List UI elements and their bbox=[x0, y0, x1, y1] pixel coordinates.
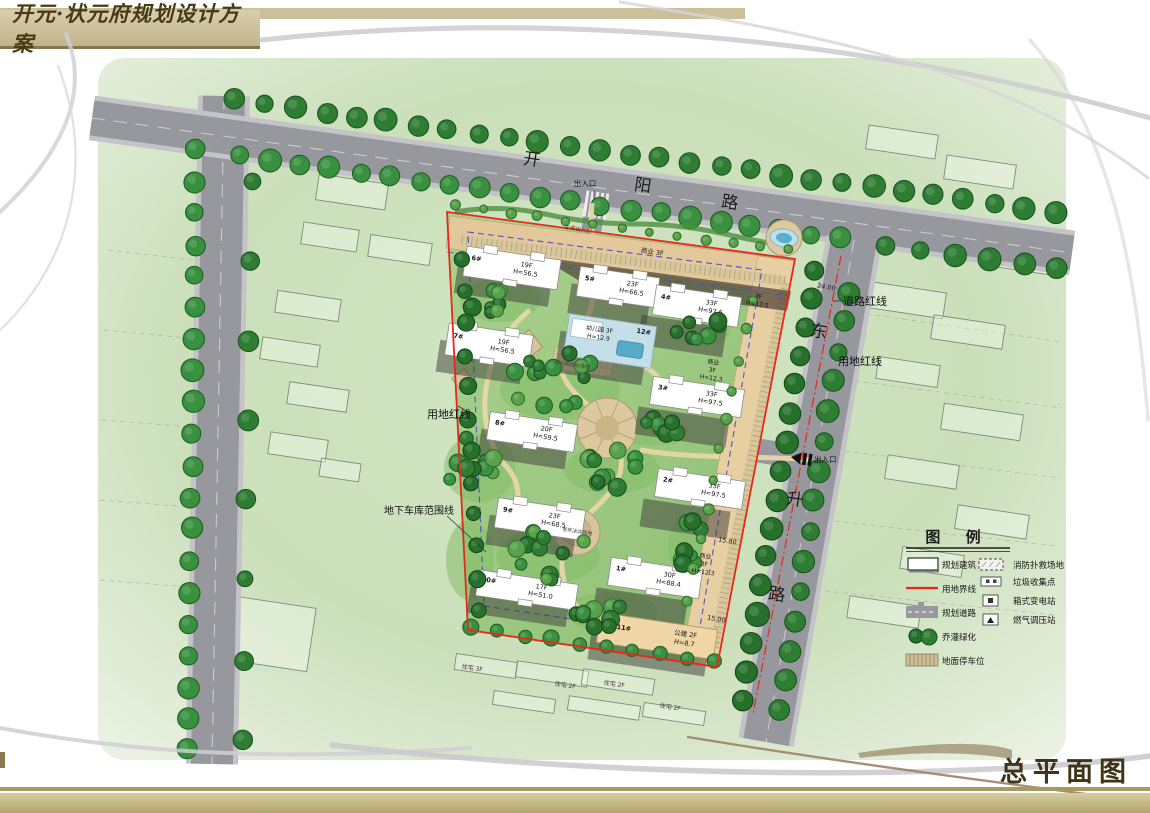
tree-highlight bbox=[525, 357, 530, 362]
tree-highlight bbox=[735, 358, 739, 362]
tree-highlight bbox=[188, 142, 196, 150]
tree-highlight bbox=[508, 210, 512, 214]
tree-icon bbox=[802, 523, 820, 541]
tree-icon bbox=[284, 96, 306, 118]
tree-highlight bbox=[182, 586, 191, 595]
tree-highlight bbox=[182, 650, 190, 658]
tree-highlight bbox=[620, 225, 623, 228]
legend-label: 规划建筑 bbox=[942, 560, 977, 571]
tree-highlight bbox=[590, 221, 593, 224]
tree-highlight bbox=[728, 388, 732, 392]
tree-highlight bbox=[698, 536, 702, 540]
tree-highlight bbox=[188, 206, 195, 213]
tree-highlight bbox=[517, 560, 522, 565]
tree-highlight bbox=[714, 215, 723, 224]
tree-highlight bbox=[682, 156, 691, 165]
tree-highlight bbox=[805, 229, 812, 236]
tree-icon bbox=[833, 174, 851, 192]
tree-highlight bbox=[836, 176, 843, 183]
tree-icon bbox=[186, 204, 204, 222]
tree-icon bbox=[463, 442, 480, 459]
tree-highlight bbox=[744, 163, 752, 171]
tree-icon bbox=[703, 504, 714, 515]
tree-icon bbox=[471, 603, 486, 618]
tree-icon bbox=[893, 180, 914, 201]
tree-highlight bbox=[642, 419, 647, 424]
plan-layers: 6#19FH=56.55#23FH=66.54#33FH=97.67#19FH=… bbox=[92, 58, 1072, 764]
tree-icon bbox=[683, 316, 696, 329]
tree-icon bbox=[374, 108, 397, 131]
tree-icon bbox=[560, 137, 579, 156]
tree-icon bbox=[745, 602, 769, 626]
tree-highlight bbox=[811, 463, 820, 472]
master-plan-drawing: 6#19FH=56.55#23FH=66.54#33FH=97.67#19FH=… bbox=[0, 0, 1150, 813]
tree-highlight bbox=[773, 464, 782, 473]
tree-highlight bbox=[538, 400, 545, 407]
tree-highlight bbox=[709, 656, 715, 662]
legend-label: 乔灌绿化 bbox=[942, 632, 977, 643]
legend-label: 垃圾收集点 bbox=[1013, 577, 1056, 588]
tree-highlight bbox=[383, 169, 391, 177]
tree-highlight bbox=[503, 186, 511, 194]
tree-icon bbox=[709, 476, 718, 485]
tree-highlight bbox=[808, 264, 816, 272]
legend-swatch bbox=[981, 577, 1001, 586]
tree-highlight bbox=[764, 521, 773, 530]
tree-highlight bbox=[612, 445, 619, 452]
tree-highlight bbox=[788, 614, 797, 623]
decorative-swoosh bbox=[0, 66, 76, 330]
building-wing bbox=[505, 410, 520, 420]
tree-highlight bbox=[818, 435, 825, 442]
tree-highlight bbox=[674, 233, 677, 236]
tree-icon bbox=[684, 513, 701, 530]
legend-label: 消防扑救场地 bbox=[1013, 560, 1065, 571]
tree-highlight bbox=[188, 300, 196, 308]
tree-highlight bbox=[682, 210, 692, 220]
tree-icon bbox=[256, 95, 273, 112]
annotation-road-redline: 道路红线 bbox=[843, 294, 887, 308]
tree-highlight bbox=[578, 608, 584, 614]
tree-highlight bbox=[672, 328, 677, 333]
tree-icon bbox=[652, 203, 671, 222]
tree-highlight bbox=[579, 537, 585, 543]
building-wing bbox=[670, 283, 685, 293]
tree-icon bbox=[491, 304, 504, 317]
tree-icon bbox=[318, 156, 340, 178]
tree-highlight bbox=[782, 406, 791, 415]
tree-highlight bbox=[247, 176, 254, 183]
tree-icon bbox=[290, 155, 310, 175]
tree-icon bbox=[179, 647, 197, 665]
tree-icon bbox=[259, 149, 282, 172]
tree-icon bbox=[740, 632, 762, 654]
tree-icon bbox=[460, 377, 477, 394]
tree-icon bbox=[801, 170, 821, 190]
tree-icon bbox=[952, 188, 973, 209]
tree-highlight bbox=[628, 646, 633, 651]
tree-highlight bbox=[841, 286, 850, 295]
tree-highlight bbox=[787, 376, 796, 385]
tree-highlight bbox=[186, 460, 194, 468]
tree-icon bbox=[834, 311, 855, 332]
tree-icon bbox=[618, 224, 626, 232]
tree-highlight bbox=[293, 158, 301, 166]
tree-highlight bbox=[1049, 261, 1058, 270]
tree-icon bbox=[727, 387, 736, 396]
tree-icon bbox=[179, 616, 197, 634]
tree-icon bbox=[235, 652, 254, 671]
tree-icon bbox=[180, 552, 199, 571]
tree-highlight bbox=[493, 306, 498, 311]
road-name-north: 路 bbox=[720, 192, 740, 214]
tree-icon bbox=[645, 228, 653, 236]
tree-highlight bbox=[1017, 256, 1026, 265]
tree-highlight bbox=[692, 335, 697, 340]
tree-highlight bbox=[923, 631, 930, 638]
tree-icon bbox=[756, 242, 765, 251]
annotation-site-redline-east: 用地红线 bbox=[838, 354, 882, 368]
tree-icon bbox=[801, 288, 822, 309]
tree-highlight bbox=[794, 586, 801, 593]
tree-highlight bbox=[185, 427, 193, 435]
tree-highlight bbox=[1048, 205, 1057, 214]
tree-highlight bbox=[472, 180, 481, 189]
tree-highlight bbox=[378, 112, 388, 122]
tree-icon bbox=[591, 475, 604, 488]
tree-highlight bbox=[956, 192, 965, 201]
tree-icon bbox=[735, 661, 757, 683]
tree-highlight bbox=[321, 159, 330, 168]
tree-icon bbox=[769, 700, 790, 721]
tree-highlight bbox=[189, 239, 197, 247]
tree-highlight bbox=[186, 394, 195, 403]
tree-icon bbox=[536, 397, 553, 414]
tree-highlight bbox=[592, 143, 601, 152]
tree-icon bbox=[457, 349, 472, 364]
tree-icon bbox=[792, 583, 810, 601]
tree-highlight bbox=[545, 632, 552, 639]
building-id: 1# bbox=[615, 564, 626, 573]
tree-icon bbox=[775, 669, 797, 691]
tree-highlight bbox=[604, 621, 610, 627]
tree-highlight bbox=[415, 175, 423, 183]
garbage-icon bbox=[981, 577, 1001, 586]
building-wing bbox=[669, 375, 684, 385]
tree-highlight bbox=[826, 373, 835, 382]
tree-highlight bbox=[460, 351, 466, 357]
tree-highlight bbox=[611, 481, 619, 489]
legend-label: 燃气调压站 bbox=[1013, 615, 1056, 626]
tree-highlight bbox=[321, 107, 329, 115]
building-icon bbox=[908, 558, 939, 572]
tree-icon bbox=[816, 400, 839, 423]
tree-highlight bbox=[187, 175, 196, 184]
tree-icon bbox=[556, 547, 569, 560]
tree-icon bbox=[741, 323, 752, 334]
building-wing bbox=[505, 327, 520, 337]
sheet-caption: 总平面图 bbox=[1000, 750, 1132, 789]
tree-highlight bbox=[736, 693, 745, 702]
building-wing bbox=[513, 496, 528, 506]
legend-swatch bbox=[908, 558, 938, 570]
tree-icon bbox=[412, 173, 430, 191]
decorative-swoosh bbox=[0, 34, 75, 212]
tree-highlight bbox=[667, 417, 673, 423]
tree-icon bbox=[183, 328, 204, 349]
tree-highlight bbox=[181, 711, 190, 720]
tree-icon bbox=[944, 244, 966, 266]
tree-icon bbox=[491, 286, 505, 300]
tree-highlight bbox=[832, 346, 839, 353]
tree-highlight bbox=[710, 477, 714, 481]
tree-highlight bbox=[188, 269, 195, 276]
tree-icon bbox=[466, 506, 480, 520]
legend-title: 图 例 bbox=[925, 528, 990, 546]
tree-highlight bbox=[897, 184, 906, 193]
building-wing bbox=[530, 252, 545, 262]
tree-highlight bbox=[743, 325, 747, 329]
legend-swatch bbox=[918, 602, 924, 607]
tree-highlight bbox=[493, 288, 499, 294]
tree-icon bbox=[573, 638, 587, 652]
tree-icon bbox=[978, 248, 1001, 271]
tree-highlight bbox=[241, 334, 250, 343]
tree-icon bbox=[450, 200, 460, 210]
tree-icon bbox=[792, 550, 814, 572]
building-id: 4# bbox=[660, 293, 671, 302]
transformer-icon bbox=[983, 595, 998, 606]
tree-icon bbox=[701, 235, 711, 245]
tree-icon bbox=[224, 89, 244, 109]
tree-highlight bbox=[1016, 201, 1025, 210]
tree-icon bbox=[515, 558, 527, 570]
tree-highlight bbox=[469, 509, 475, 515]
tree-icon bbox=[506, 209, 516, 219]
annotation-entrance-north: 出入口 bbox=[574, 178, 597, 188]
tree-highlight bbox=[487, 452, 494, 459]
tree-highlight bbox=[716, 445, 720, 449]
greenery-icon bbox=[909, 629, 937, 645]
corner-tick bbox=[0, 752, 5, 768]
tree-icon bbox=[587, 453, 602, 468]
tree-icon bbox=[181, 359, 204, 382]
tree-icon bbox=[863, 175, 886, 198]
building-id: 7# bbox=[453, 332, 464, 341]
tree-highlight bbox=[769, 493, 778, 502]
tree-icon bbox=[233, 730, 252, 749]
tree-highlight bbox=[911, 631, 917, 637]
tree-icon bbox=[577, 535, 590, 548]
tree-highlight bbox=[753, 577, 762, 586]
tree-icon bbox=[613, 600, 626, 613]
tree-highlight bbox=[564, 194, 572, 202]
tree-highlight bbox=[492, 626, 497, 631]
tree-icon bbox=[185, 266, 203, 284]
tree-highlight bbox=[744, 636, 753, 645]
tree-highlight bbox=[652, 150, 660, 158]
plaza-center bbox=[595, 416, 619, 440]
tree-highlight bbox=[606, 601, 613, 608]
tree-highlight bbox=[457, 254, 463, 260]
tree-highlight bbox=[466, 301, 474, 309]
tree-icon bbox=[713, 157, 731, 175]
tree-highlight bbox=[227, 92, 236, 101]
tree-highlight bbox=[683, 654, 689, 660]
tree-icon bbox=[609, 442, 625, 458]
tree-icon bbox=[1013, 197, 1035, 219]
tree-icon bbox=[641, 417, 653, 429]
tree-icon bbox=[561, 191, 580, 210]
tree-icon bbox=[690, 333, 702, 345]
tree-highlight bbox=[947, 248, 956, 257]
tree-highlight bbox=[462, 380, 469, 387]
tree-highlight bbox=[602, 642, 608, 648]
annotation-entrance-east: 出入口 bbox=[814, 454, 837, 464]
tree-highlight bbox=[785, 246, 789, 250]
tree-highlight bbox=[460, 286, 466, 292]
tree-icon bbox=[241, 252, 259, 270]
tree-highlight bbox=[804, 173, 813, 182]
tree-highlight bbox=[759, 549, 768, 558]
tree-icon bbox=[696, 534, 705, 543]
tree-highlight bbox=[685, 318, 690, 323]
tree-highlight bbox=[186, 332, 195, 341]
tree-highlight bbox=[730, 240, 734, 244]
tree-highlight bbox=[534, 212, 538, 216]
tree-icon bbox=[444, 473, 456, 485]
tree-highlight bbox=[655, 648, 661, 654]
road-name-east: 东 bbox=[809, 321, 829, 343]
legend-swatch bbox=[986, 580, 990, 584]
tree-icon bbox=[458, 284, 473, 299]
tree-highlight bbox=[543, 575, 548, 580]
tree-highlight bbox=[452, 457, 459, 464]
tree-highlight bbox=[655, 205, 663, 213]
tree-icon bbox=[986, 195, 1004, 213]
tree-highlight bbox=[589, 621, 596, 628]
tree-icon bbox=[664, 415, 679, 430]
tree-icon bbox=[921, 629, 937, 645]
tree-highlight bbox=[471, 573, 478, 580]
tree-highlight bbox=[589, 455, 595, 461]
tree-highlight bbox=[687, 515, 694, 522]
tree-highlight bbox=[615, 602, 621, 608]
tree-icon bbox=[485, 450, 502, 467]
legend-label: 地面停车位 bbox=[942, 656, 985, 667]
gas-station-icon bbox=[983, 614, 998, 625]
tree-icon bbox=[709, 312, 727, 330]
tree-icon bbox=[454, 252, 469, 267]
footer-gold-band bbox=[0, 787, 1150, 791]
tree-icon bbox=[458, 314, 475, 331]
footer-khaki-band bbox=[0, 793, 1150, 813]
tree-highlight bbox=[630, 453, 636, 459]
tree-highlight bbox=[779, 435, 789, 445]
tree-icon bbox=[739, 215, 760, 236]
tree-highlight bbox=[183, 555, 191, 563]
road-name-north: 阳 bbox=[633, 175, 653, 197]
tree-highlight bbox=[703, 237, 707, 241]
building-id: 8# bbox=[494, 418, 505, 427]
tree-icon bbox=[670, 326, 683, 339]
tree-icon bbox=[589, 140, 610, 161]
tree-highlight bbox=[539, 533, 545, 539]
tree-highlight bbox=[481, 206, 484, 209]
tree-highlight bbox=[772, 703, 781, 712]
tree-highlight bbox=[521, 632, 527, 638]
tree-icon bbox=[464, 476, 479, 491]
tree-icon bbox=[508, 540, 525, 557]
tree-icon bbox=[511, 392, 524, 405]
tree-highlight bbox=[866, 178, 875, 187]
tree-icon bbox=[237, 571, 253, 587]
tree-highlight bbox=[580, 373, 585, 378]
tree-icon bbox=[463, 298, 481, 316]
tree-icon bbox=[756, 545, 776, 565]
tree-icon bbox=[185, 139, 205, 159]
tree-icon bbox=[184, 172, 205, 193]
tree-highlight bbox=[804, 525, 811, 532]
page: 开元·状元府规划设计方案 6#19FH=56.55#23FH=66.54#33F… bbox=[0, 0, 1150, 813]
tree-icon bbox=[470, 125, 488, 143]
tree-icon bbox=[178, 678, 200, 700]
annotation-garage-outline: 地下车库范围线 bbox=[384, 504, 454, 517]
tree-highlight bbox=[624, 149, 632, 157]
legend-label: 用地界线 bbox=[942, 584, 977, 595]
tree-highlight bbox=[473, 128, 481, 136]
road-name-north: 开 bbox=[522, 149, 542, 171]
tree-icon bbox=[183, 457, 203, 477]
tree-icon bbox=[440, 175, 459, 194]
tree-highlight bbox=[443, 178, 451, 186]
tree-icon bbox=[714, 444, 723, 453]
tree-icon bbox=[779, 641, 801, 663]
tree-icon bbox=[912, 242, 929, 259]
tree-icon bbox=[562, 346, 577, 361]
tree-icon bbox=[1014, 253, 1036, 275]
tree-icon bbox=[231, 146, 249, 164]
tree-highlight bbox=[820, 403, 830, 413]
tree-icon bbox=[238, 331, 258, 351]
tree-icon bbox=[785, 611, 806, 632]
tree-icon bbox=[178, 708, 199, 729]
tree-highlight bbox=[805, 492, 814, 501]
tree-highlight bbox=[757, 243, 761, 247]
tree-icon bbox=[500, 184, 519, 203]
tree-highlight bbox=[804, 291, 813, 300]
tree-highlight bbox=[513, 394, 518, 399]
tree-icon bbox=[621, 200, 641, 220]
parking-icon bbox=[906, 654, 938, 666]
tree-highlight bbox=[722, 415, 727, 420]
tree-highlight bbox=[702, 330, 709, 337]
tree-icon bbox=[791, 347, 810, 366]
tree-icon bbox=[182, 390, 204, 412]
tree-highlight bbox=[773, 168, 783, 178]
tree-icon bbox=[506, 363, 523, 380]
tree-highlight bbox=[240, 573, 247, 580]
tree-icon bbox=[679, 153, 700, 174]
tree-highlight bbox=[241, 413, 250, 422]
tree-highlight bbox=[981, 251, 991, 261]
building-id: 9# bbox=[502, 505, 513, 514]
building-wing bbox=[497, 568, 512, 578]
tree-icon bbox=[741, 160, 760, 179]
tree-icon bbox=[530, 187, 550, 207]
central-plaza bbox=[577, 398, 637, 458]
building-wing bbox=[627, 556, 642, 566]
